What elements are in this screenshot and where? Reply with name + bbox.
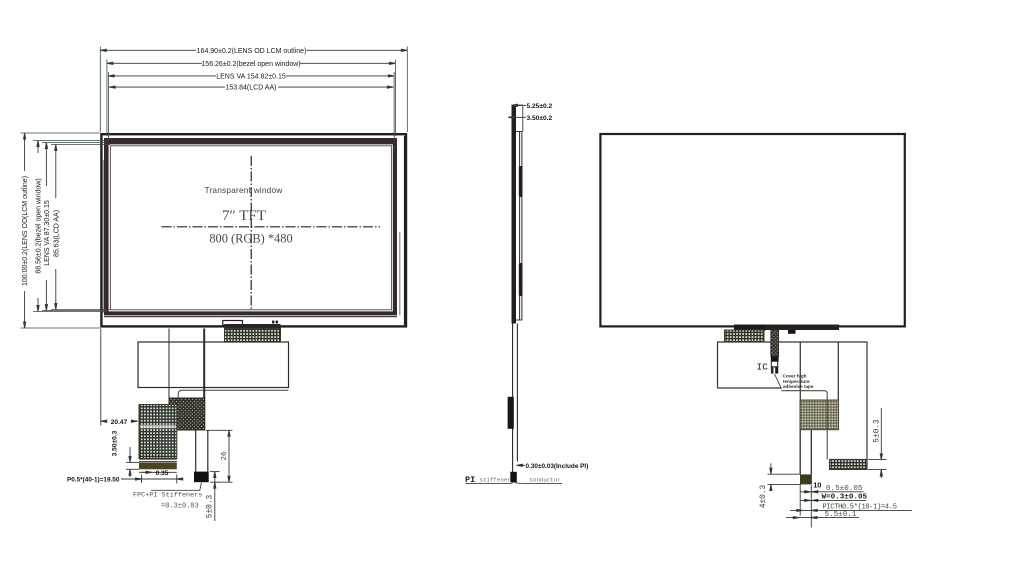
- svg-text:W=0.3±0.05: W=0.3±0.05: [822, 494, 868, 502]
- svg-text:0.35: 0.35: [156, 470, 169, 477]
- svg-text:3.50±0.2: 3.50±0.2: [527, 115, 553, 122]
- svg-text:800 (RGB) *480: 800 (RGB) *480: [209, 231, 292, 245]
- svg-text:5±0.3: 5±0.3: [207, 494, 215, 518]
- svg-text:P0.5*(40-1)=19.50: P0.5*(40-1)=19.50: [67, 477, 120, 484]
- svg-text:FPC+PI Stiffeners: FPC+PI Stiffeners: [133, 492, 202, 500]
- svg-text:4±0.3: 4±0.3: [760, 484, 768, 508]
- svg-text:100.00±0.2(LENS OD(LCM outline: 100.00±0.2(LENS OD(LCM outline): [22, 176, 29, 286]
- svg-text:=0.3±0.03: =0.3±0.03: [161, 503, 199, 511]
- svg-text:adhesive tape: adhesive tape: [783, 384, 814, 389]
- svg-text:20.47: 20.47: [111, 419, 128, 426]
- svg-text:156.26±0.2(bezel open window): 156.26±0.2(bezel open window): [201, 61, 300, 68]
- svg-text:Transparent window: Transparent window: [204, 185, 283, 195]
- svg-text:0.30±0.03(Include PI): 0.30±0.03(Include PI): [526, 463, 589, 470]
- svg-text:stiffener: stiffener: [480, 477, 511, 484]
- svg-text:LENS VA 154.82±0.15: LENS VA 154.82±0.15: [216, 73, 286, 80]
- svg-text:5±0.3: 5±0.3: [874, 419, 882, 443]
- svg-text:Cover high: Cover high: [783, 374, 807, 379]
- svg-text:10: 10: [813, 481, 821, 490]
- svg-text:temperature: temperature: [783, 379, 810, 384]
- svg-text:164.90±0.2(LENS OD LCM outline: 164.90±0.2(LENS OD LCM outline): [197, 48, 307, 55]
- svg-text:LENS VA 87.30±0.15: LENS VA 87.30±0.15: [44, 200, 51, 266]
- svg-text:3.50±0.3: 3.50±0.3: [112, 430, 119, 456]
- svg-text:Conductor: Conductor: [530, 477, 561, 484]
- svg-text:IC: IC: [757, 362, 769, 373]
- svg-text:7″ TFT: 7″ TFT: [222, 208, 266, 224]
- svg-text:88.56±0.2(bezel open window): 88.56±0.2(bezel open window): [36, 178, 43, 273]
- svg-text:5.5±0.1: 5.5±0.1: [825, 511, 857, 519]
- svg-text:26: 26: [221, 451, 229, 461]
- svg-text:85.63(LCD AA): 85.63(LCD AA): [53, 210, 60, 257]
- svg-text:5.25±0.2: 5.25±0.2: [527, 103, 553, 110]
- svg-text:0.5±0.05: 0.5±0.05: [826, 485, 863, 493]
- svg-text:153.84(LCD AA): 153.84(LCD AA): [226, 85, 277, 92]
